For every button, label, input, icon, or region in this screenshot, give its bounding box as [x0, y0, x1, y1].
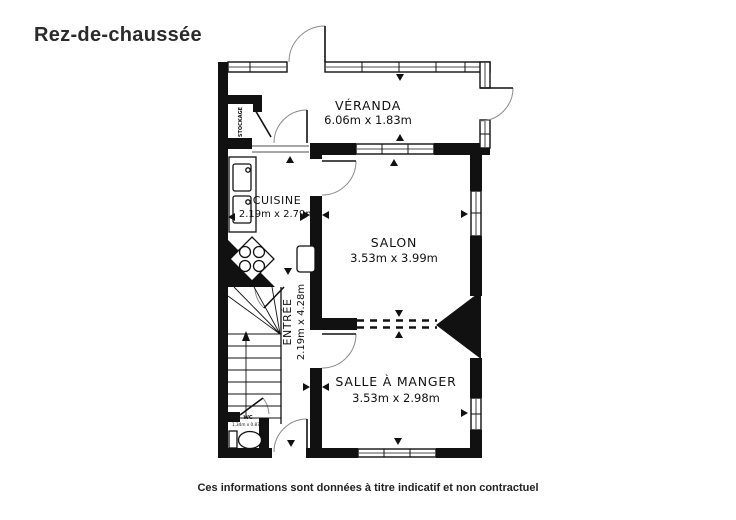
disclaimer-text: Ces informations sont données à titre in…: [0, 482, 736, 494]
door-veranda-top: [289, 26, 325, 62]
door-storage: [254, 108, 271, 137]
door-veranda-right: [480, 88, 513, 121]
veranda-label: VÉRANDA: [335, 98, 401, 113]
entree-dims: 2.19m x 4.28m: [296, 284, 307, 360]
kitchen-corner-hob: [228, 237, 275, 287]
wc-toilet: [229, 431, 262, 449]
door-dining: [322, 334, 356, 368]
storage-label-group: STOCKAGE: [238, 106, 244, 137]
cuisine-label: CUISINE: [253, 194, 302, 207]
door-veranda-kitchen: [274, 110, 307, 143]
entree-label: ENTRÉE: [281, 298, 294, 345]
dining-label: SALLE À MANGER: [335, 374, 456, 389]
chimney-corner: [436, 291, 481, 359]
salon-dims: 3.53m x 3.99m: [350, 251, 438, 265]
dining-dims: 3.53m x 2.98m: [352, 391, 440, 405]
veranda-dims: 6.06m x 1.83m: [324, 113, 412, 127]
wc-label: WC: [243, 415, 253, 421]
floor-plan: VÉRANDA 6.06m x 1.83m CUISINE 2.19m x 2.…: [0, 0, 736, 520]
hall-radiator: [297, 246, 315, 272]
door-wc: [240, 398, 269, 415]
wc-dims: 1.34m x 0.87m: [232, 422, 264, 427]
storage-label: STOCKAGE: [238, 106, 244, 137]
entree-label-group: ENTRÉE 2.19m x 4.28m: [281, 284, 307, 360]
stair-up-arrow: [242, 331, 250, 341]
door-front-entrance: [274, 419, 307, 452]
cuisine-dims: 2.19m x 2.79m: [239, 209, 315, 220]
door-salon: [322, 161, 356, 195]
salon-dining-open-passage: [357, 321, 437, 328]
floor-plan-page: Rez-de-chaussée: [0, 0, 736, 520]
salon-label: SALON: [371, 235, 417, 250]
